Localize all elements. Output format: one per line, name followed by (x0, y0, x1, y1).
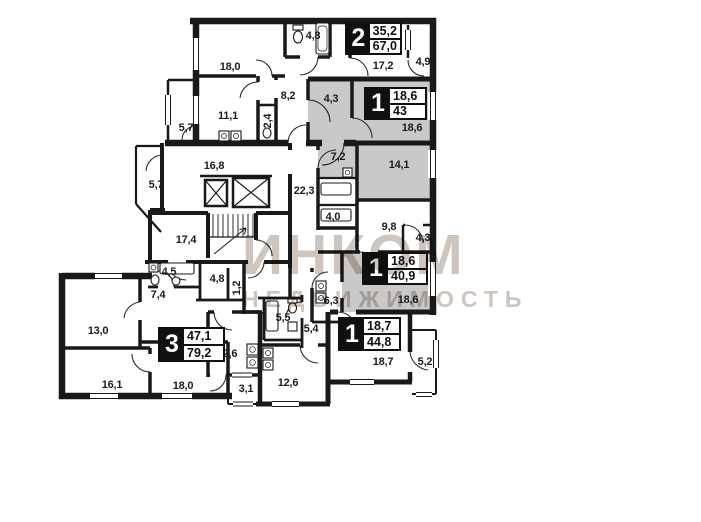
room-area-label: 18,6 (402, 122, 423, 134)
room-area-label: 16,1 (102, 379, 123, 391)
room-area-label: 17,4 (176, 234, 197, 246)
toilet-icon (293, 25, 303, 30)
apartment-living-area: 18,6 (388, 254, 426, 270)
room-area-label: 5,7 (149, 179, 164, 191)
room-area-label: 3,1 (239, 383, 254, 395)
apartment-badge-1room-top: 1 18,6 43 (364, 87, 427, 120)
room-area-label: 5,7 (179, 122, 194, 134)
apartment-rooms-count: 1 (340, 319, 364, 349)
room-area-label: 8,2 (281, 90, 296, 102)
room-area-label: 11,1 (218, 110, 238, 122)
room-area-label: 18,7 (373, 356, 394, 368)
apartment-badge-1room-bottom: 1 18,7 44,8 (338, 317, 401, 351)
room-area-label: 4,3 (324, 93, 339, 105)
apartment-living-area: 18,7 (364, 319, 399, 335)
toilet-icon (151, 275, 159, 285)
apartment-rooms-count: 3 (160, 329, 184, 360)
room-area-label: 14,1 (389, 159, 410, 171)
room-area-label: 9,8 (382, 221, 397, 233)
room-area-label: 5,2 (418, 356, 433, 368)
staircase-icon (209, 214, 255, 254)
room-area-label: 6,3 (324, 295, 339, 307)
room-area-label: 7,4 (151, 289, 166, 301)
apartment-total-area: 79,2 (184, 346, 223, 361)
apartment-total-area: 44,8 (364, 335, 399, 349)
apartment-badge-2room: 2 35,2 67,0 (345, 22, 402, 55)
apartment-total-area: 67,0 (370, 40, 400, 54)
room-area-label: 17,2 (373, 60, 394, 72)
toilet-icon (263, 128, 271, 138)
sink-icon (172, 277, 180, 285)
room-area-label: 22,3 (294, 185, 315, 197)
room-area-label: 5,4 (304, 323, 319, 335)
room-area-label: 12,6 (278, 377, 299, 389)
apartment-total-area: 43 (390, 105, 425, 119)
room-area-label: 5,5 (276, 312, 291, 324)
bathtub-icon (321, 183, 351, 195)
apartment-living-area: 35,2 (370, 24, 400, 40)
room-area-label: 7,2 (331, 151, 346, 163)
room-area-label: 1,2 (231, 281, 243, 296)
room-area-label: 4,5 (162, 266, 177, 278)
toilet-icon (288, 299, 297, 303)
room-area-label: 4,0 (326, 211, 341, 223)
room-area-label: 13,0 (88, 325, 109, 337)
apartment-badge-3room: 3 47,1 79,2 (158, 327, 225, 362)
apartment-badge-1room-middle: 1 18,6 40,9 (362, 252, 428, 285)
room-area-label: 18,0 (220, 61, 241, 73)
apartment-living-area: 47,1 (184, 329, 223, 346)
elevator-shaft-icon (200, 176, 272, 207)
room-area-label: 4,8 (210, 273, 225, 285)
apartment-total-area: 40,9 (388, 270, 426, 284)
room-area-label: 4,8 (306, 30, 321, 42)
room-area-label: 16,8 (204, 160, 225, 172)
room-area-label: 18,6 (398, 294, 419, 306)
apartment-rooms-count: 1 (366, 89, 390, 118)
room-area-label: 2,4 (262, 114, 274, 129)
floorplan-page: 18,0 4,8 17,2 4,9 8,2 11,1 2,4 5,7 4,3 1… (0, 0, 701, 522)
room-area-label: 4,9 (416, 56, 431, 68)
apartment-rooms-count: 1 (364, 254, 388, 283)
room-area-label: 18,0 (173, 380, 194, 392)
apartment-living-area: 18,6 (390, 89, 425, 105)
room-area-label: 4,3 (416, 232, 431, 244)
apartment-rooms-count: 2 (347, 24, 370, 53)
floorplan-drawing (0, 0, 701, 522)
